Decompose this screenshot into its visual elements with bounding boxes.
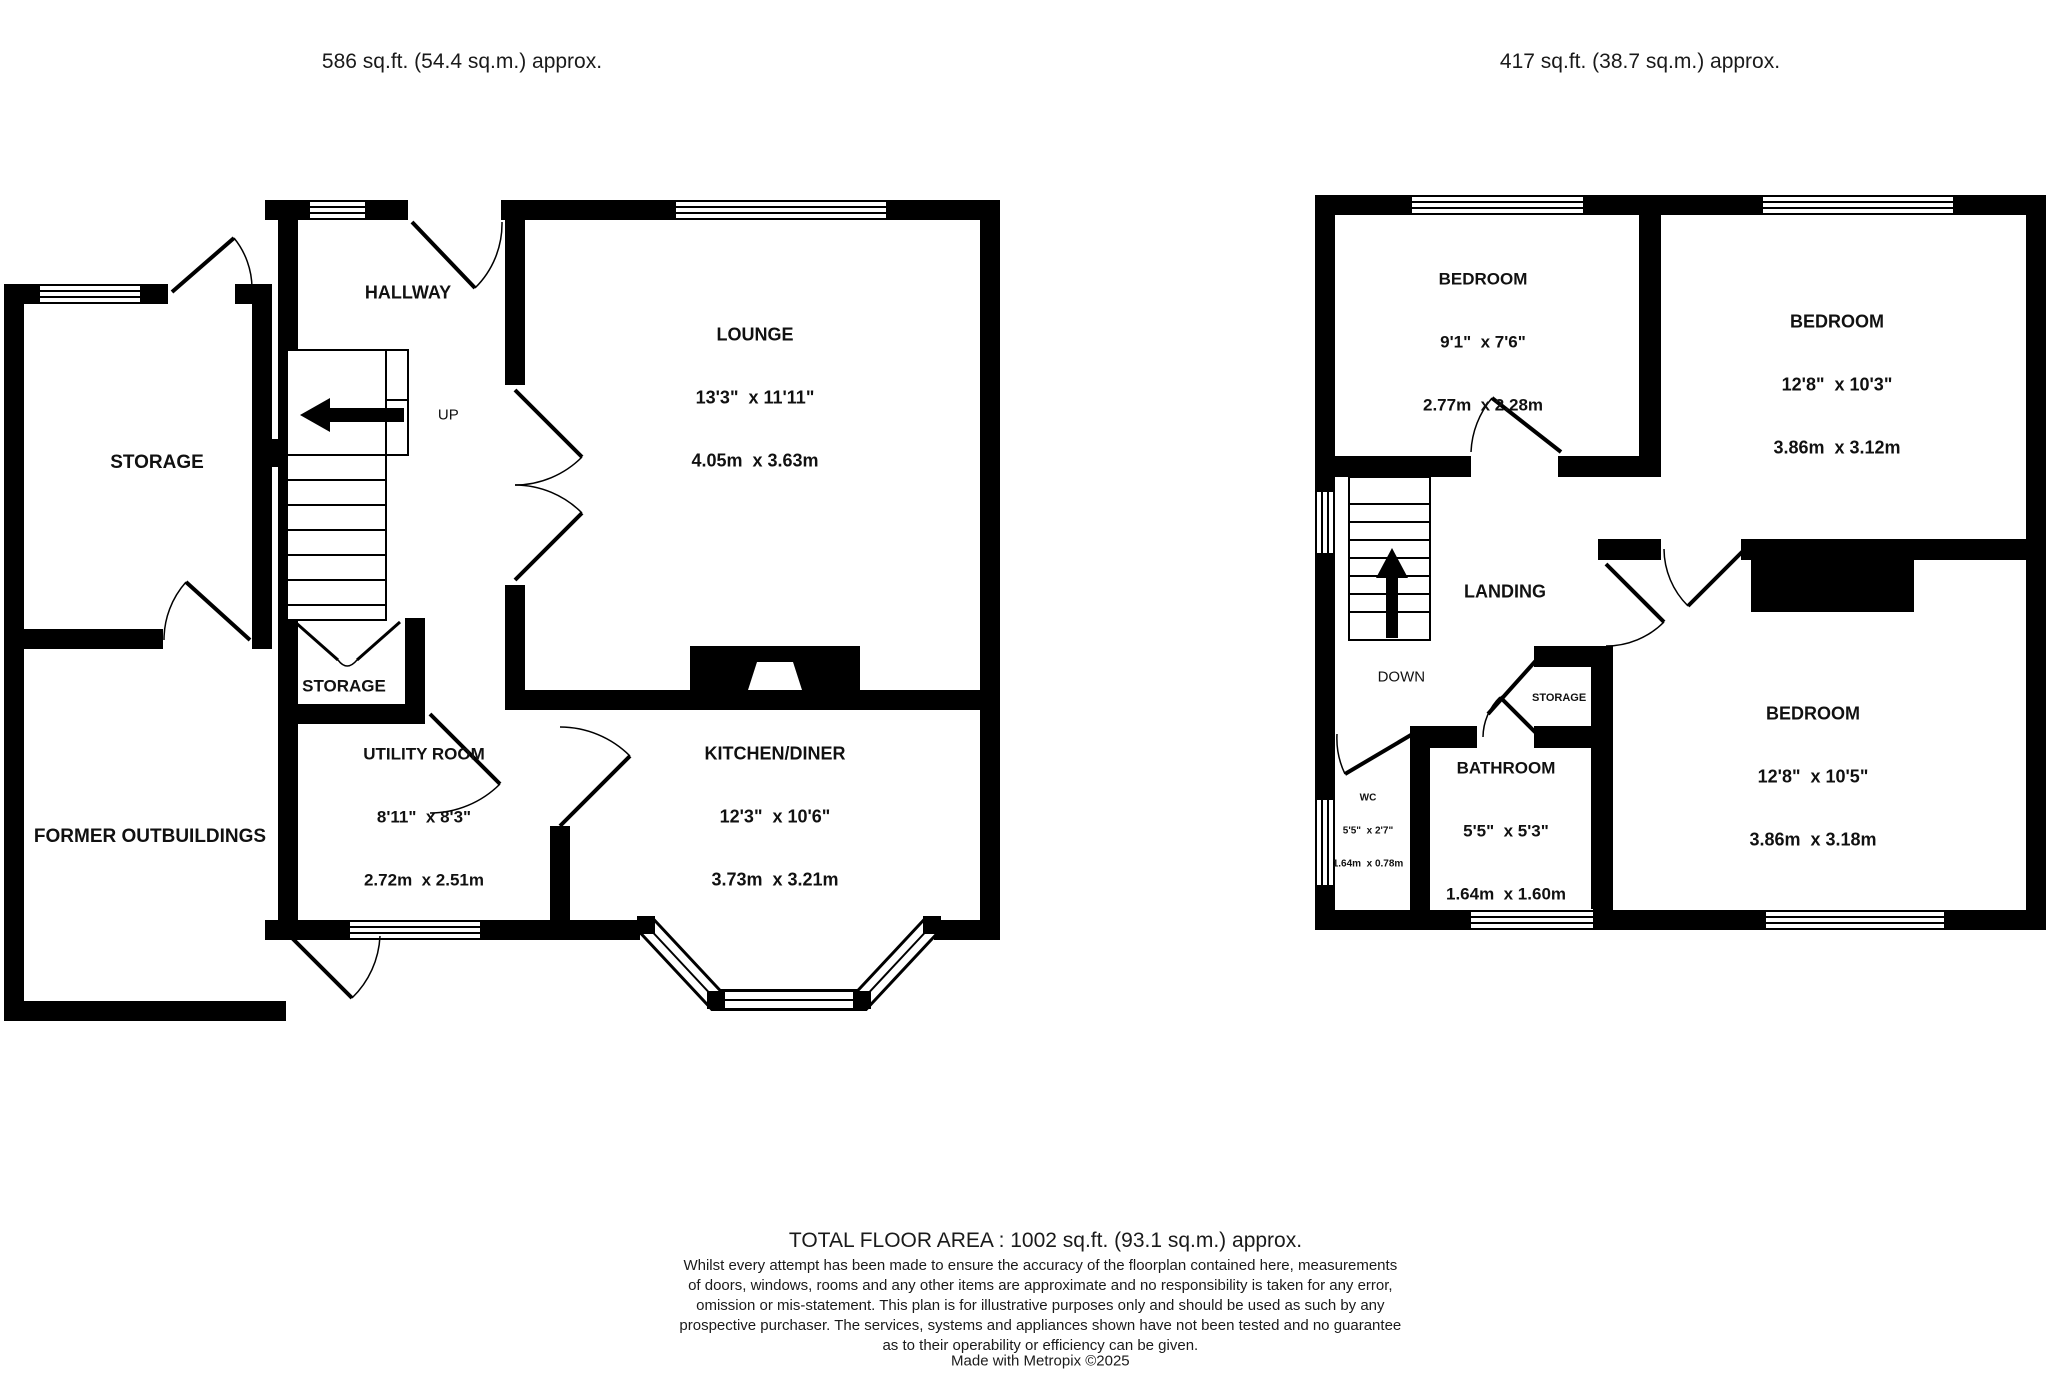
room-label-former-outbuildings: FORMER OUTBUILDINGS (34, 782, 266, 892)
room-label-utility: UTILITY ROOM 8'11" x 8'3" 2.72m x 2.51m (363, 702, 485, 933)
metropix-credit: Made with Metropix ©2025 (934, 1336, 1129, 1387)
ground-floor-title: GROUND FLOOR 586 sq.ft. (54.4 sq.m.) app… (322, 0, 602, 122)
room-label-wc: WC 5'5" x 2'7" 1.64m x 0.78m (1333, 771, 1404, 892)
room-label-bathroom: BATHROOM 5'5" x 5'3" 1.64m x 1.60m (1446, 716, 1566, 947)
floorplan-labels: GROUND FLOOR 586 sq.ft. (54.4 sq.m.) app… (0, 0, 2048, 1369)
room-label-storage-annex: STORAGE (110, 408, 204, 518)
stairs-up-label: UP (421, 390, 459, 441)
room-label-storage-first-floor: STORAGE (1532, 692, 1589, 704)
room-label-bedroom3: BEDROOM 12'8" x 10'5" 3.86m x 3.18m (1749, 662, 1876, 893)
room-label-hallway: HALLWAY (365, 241, 451, 346)
stairs-down-label: DOWN (1361, 652, 1425, 703)
room-label-landing: LANDING (1464, 540, 1546, 645)
room-label-bedroom2: BEDROOM 12'8" x 10'3" 3.86m x 3.12m (1773, 270, 1900, 501)
first-floor-title: 1ST FLOOR 417 sq.ft. (38.7 sq.m.) approx… (1500, 0, 1780, 122)
room-label-bedroom1: BEDROOM 9'1" x 7'6" 2.77m x 2.28m (1423, 227, 1543, 458)
room-label-kitchen-diner: KITCHEN/DINER 12'3" x 10'6" 3.73m x 3.21… (704, 702, 845, 933)
room-label-lounge: LOUNGE 13'3" x 11'11" 4.05m x 3.63m (691, 283, 818, 514)
